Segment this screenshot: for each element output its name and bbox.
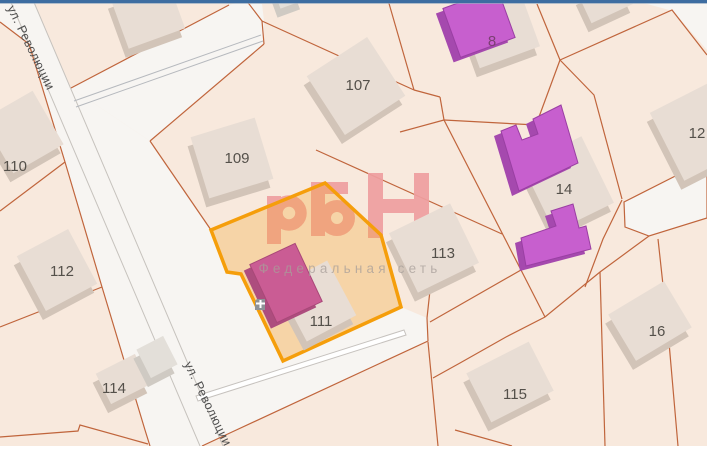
svg-text:115: 115 xyxy=(503,386,527,403)
svg-text:8: 8 xyxy=(488,33,496,50)
svg-text:109: 109 xyxy=(224,150,249,167)
svg-text:Федеральная сеть: Федеральная сеть xyxy=(258,261,441,276)
svg-text:12: 12 xyxy=(689,125,706,142)
svg-text:14: 14 xyxy=(556,181,573,198)
svg-text:114: 114 xyxy=(102,380,126,397)
svg-text:113: 113 xyxy=(431,245,455,262)
svg-text:111: 111 xyxy=(310,313,333,330)
svg-text:107: 107 xyxy=(345,77,370,94)
svg-text:16: 16 xyxy=(649,323,666,340)
svg-text:110: 110 xyxy=(3,158,27,175)
svg-text:112: 112 xyxy=(50,263,74,280)
